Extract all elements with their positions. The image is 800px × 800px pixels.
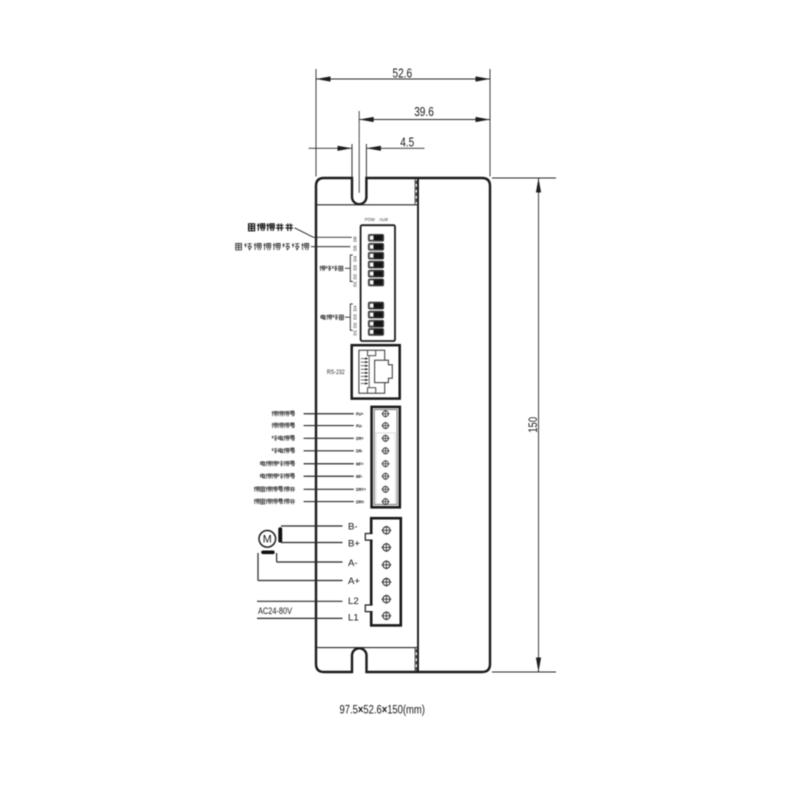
svg-text:M: M xyxy=(263,534,272,546)
svg-text:D5: D5 xyxy=(352,245,357,251)
svg-text:B+: B+ xyxy=(348,539,360,550)
svg-text:RS-232: RS-232 xyxy=(327,370,345,376)
svg-text:POW: POW xyxy=(365,217,375,222)
svg-text:A-: A- xyxy=(348,558,358,569)
svg-text:PU-: PU- xyxy=(356,423,363,429)
svg-text:DR-: DR- xyxy=(356,448,363,454)
svg-text:D4: D4 xyxy=(352,305,357,311)
svg-text:D3: D3 xyxy=(352,264,357,270)
svg-text:AC24-80V: AC24-80V xyxy=(258,606,292,616)
svg-text:PU+: PU+ xyxy=(356,411,364,417)
svg-text:ALM: ALM xyxy=(379,217,388,222)
svg-text:97.5×52.6×150(mm): 97.5×52.6×150(mm) xyxy=(340,703,425,717)
svg-text:D4: D4 xyxy=(352,255,357,261)
svg-text:MF-: MF- xyxy=(356,474,363,480)
svg-text:52.6: 52.6 xyxy=(393,68,413,81)
svg-text:B-: B- xyxy=(348,522,358,533)
svg-text:L1: L1 xyxy=(348,613,359,624)
svg-text:D3: D3 xyxy=(352,314,357,320)
svg-text:MF+: MF+ xyxy=(356,461,364,467)
svg-text:D1: D1 xyxy=(352,329,357,335)
svg-text:D1: D1 xyxy=(352,281,357,287)
svg-text:A+: A+ xyxy=(348,576,360,587)
svg-text:L2: L2 xyxy=(348,596,359,607)
svg-text:DR+: DR+ xyxy=(356,436,364,442)
svg-text:D2: D2 xyxy=(352,273,357,279)
svg-text:DRY-: DRY- xyxy=(356,499,365,505)
svg-text:150: 150 xyxy=(527,417,540,433)
svg-text:D6: D6 xyxy=(352,236,357,242)
svg-text:D2: D2 xyxy=(352,322,357,328)
svg-text:4.5: 4.5 xyxy=(400,137,414,150)
svg-text:39.6: 39.6 xyxy=(414,106,434,119)
svg-text:DRY+: DRY+ xyxy=(356,487,366,493)
